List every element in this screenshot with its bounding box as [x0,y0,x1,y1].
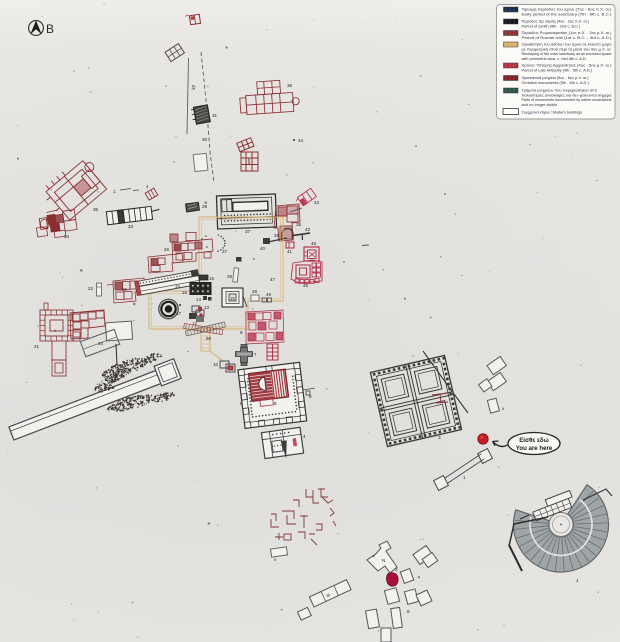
svg-text:10: 10 [213,362,218,367]
svg-text:38: 38 [296,222,302,227]
svg-text:30: 30 [202,137,208,142]
svg-text:37: 37 [245,229,251,235]
svg-text:Christian monuments (5th - 6th: Christian monuments (5th - 6th c. A.D.) [522,80,590,85]
svg-text:26: 26 [227,274,233,279]
svg-text:46: 46 [303,283,309,288]
svg-text:4: 4 [303,434,306,439]
svg-text:43: 43 [314,200,320,205]
svg-text:17: 17 [176,311,182,316]
svg-text:8: 8 [407,609,410,614]
svg-text:35: 35 [93,207,99,212]
svg-text:36: 36 [287,83,293,88]
svg-text:39: 39 [274,233,279,238]
svg-text:N: N [382,558,385,563]
svg-text:32: 32 [191,84,196,90]
svg-text:20: 20 [98,341,104,346]
svg-text:45: 45 [311,241,317,246]
svg-text:13: 13 [204,305,209,310]
svg-text:8: 8 [309,394,312,399]
svg-text:42: 42 [305,227,311,232]
svg-text:33: 33 [128,224,134,229]
svg-text:6: 6 [274,401,277,406]
svg-text:50: 50 [206,336,212,341]
svg-text:40: 40 [260,246,265,251]
svg-text:47: 47 [270,277,276,282]
svg-text:and no longer visible: and no longer visible [522,102,558,107]
svg-text:with perimetric stoa, c. mid-4: with perimetric stoa, c. mid-4th c. A.D. [522,56,587,61]
svg-text:5: 5 [240,401,243,406]
svg-text:2: 2 [395,567,398,572]
svg-text:15: 15 [230,296,235,301]
svg-text:9: 9 [240,330,243,335]
svg-text:B: B [46,22,54,36]
svg-text:48: 48 [252,289,257,294]
svg-text:31: 31 [212,113,218,118]
svg-text:Period of Late Antiquity (4th: Period of Late Antiquity (4th - 5th c. A… [522,67,593,72]
svg-text:Είσθε εδώ: Είσθε εδώ [519,437,549,444]
svg-text:Early period of the sanctuary: Early period of the sanctuary (7th - 6th… [522,11,613,16]
svg-text:Σύγχρονα κτίρια / Modern build: Σύγχρονα κτίρια / Modern buildings [522,110,583,115]
svg-text:22: 22 [88,286,94,291]
svg-text:49: 49 [266,292,271,297]
svg-text:44: 44 [298,138,304,143]
svg-text:16: 16 [182,290,187,295]
svg-text:21: 21 [34,344,40,349]
svg-text:18: 18 [209,276,214,281]
svg-text:34: 34 [64,234,70,239]
svg-text:27: 27 [222,249,228,254]
svg-text:Period of Roman rule (1st c. B: Period of Roman rule (1st c. B.C. - 3rd … [522,35,613,40]
svg-text:You are here: You are here [516,445,553,452]
svg-text:14: 14 [196,297,201,302]
svg-text:19: 19 [175,284,180,289]
svg-text:41: 41 [287,249,292,254]
svg-text:28: 28 [164,247,169,252]
svg-text:1.: 1. [113,189,117,194]
svg-text:19: 19 [122,287,127,292]
svg-text:Period of zenith (4th - 2nd c.: Period of zenith (4th - 2nd c. B.C.) [522,23,582,28]
svg-text:1: 1 [576,578,579,583]
svg-text:3: 3 [438,435,441,441]
svg-text:29: 29 [202,204,208,209]
